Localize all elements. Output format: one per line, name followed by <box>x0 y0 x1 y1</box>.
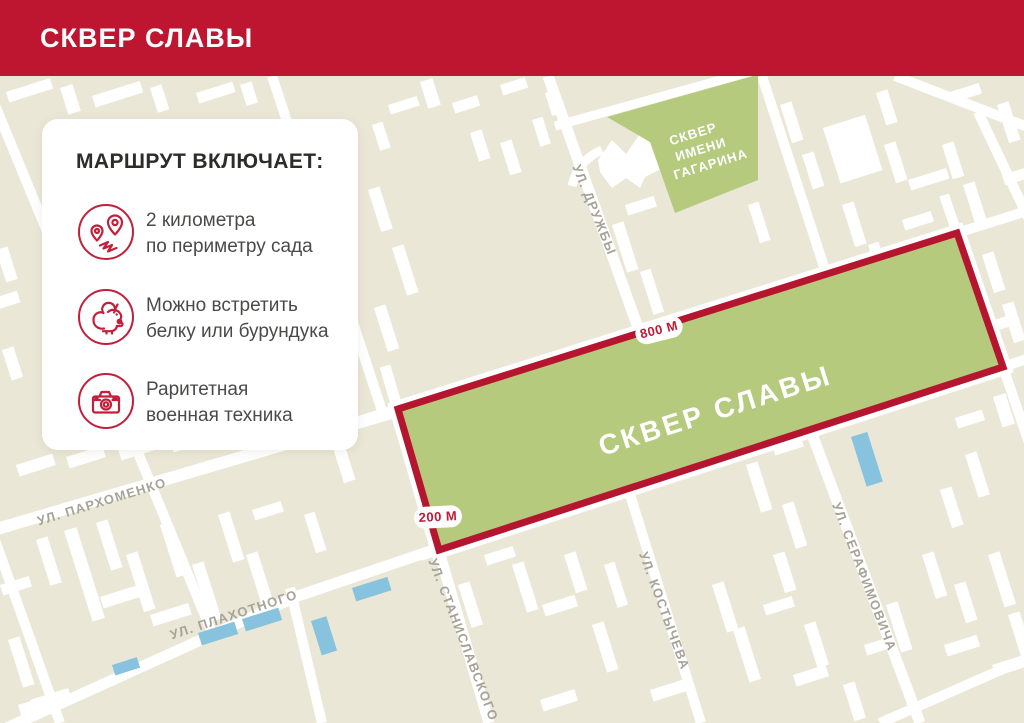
wildlife-item-line2: белку или бурундука <box>146 319 329 345</box>
photo-item-text: Раритетная военная техника <box>146 377 293 429</box>
route-item-line1: 2 километра <box>146 208 313 234</box>
route-card: МАРШРУТ ВКЛЮЧАЕТ: 2 километра по перимет… <box>42 119 358 450</box>
wildlife-item-text: Можно встретить белку или бурундука <box>146 293 329 345</box>
squirrel-icon <box>78 289 134 345</box>
distance-badge-200m: 200 М <box>413 505 462 529</box>
route-item-wildlife: Можно встретить белку или бурундука <box>78 289 338 351</box>
photo-item-line1: Раритетная <box>146 377 293 403</box>
route-item-photo: Раритетная военная техника <box>78 373 338 435</box>
card-title: МАРШРУТ ВКЛЮЧАЕТ: <box>76 150 324 174</box>
camera-icon <box>78 373 134 429</box>
photo-item-line2: военная техника <box>146 403 293 429</box>
route-pins-icon <box>78 204 134 260</box>
route-item-line2: по периметру сада <box>146 234 313 260</box>
wildlife-item-line1: Можно встретить <box>146 293 329 319</box>
route-item-distance: 2 километра по периметру сада <box>78 204 338 266</box>
route-item-text: 2 километра по периметру сада <box>146 208 313 260</box>
page-title: СКВЕР СЛАВЫ <box>40 23 253 54</box>
page-root: СКВЕР ИМЕНИ ГАГАРИНА СКВЕР СЛАВЫ УЛ. ДРУ… <box>0 0 1024 723</box>
header-bar: СКВЕР СЛАВЫ <box>0 0 1024 76</box>
